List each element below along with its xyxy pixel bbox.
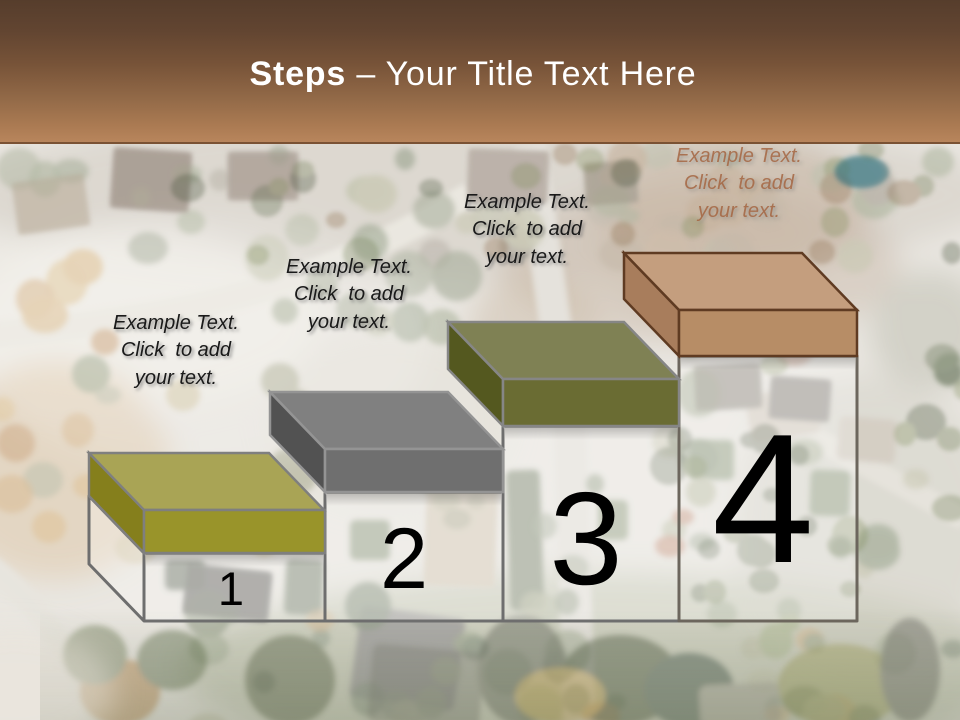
svg-text:2: 2 xyxy=(380,511,428,607)
svg-text:4: 4 xyxy=(712,395,814,601)
svg-text:3: 3 xyxy=(549,465,622,612)
svg-text:1: 1 xyxy=(218,562,244,615)
